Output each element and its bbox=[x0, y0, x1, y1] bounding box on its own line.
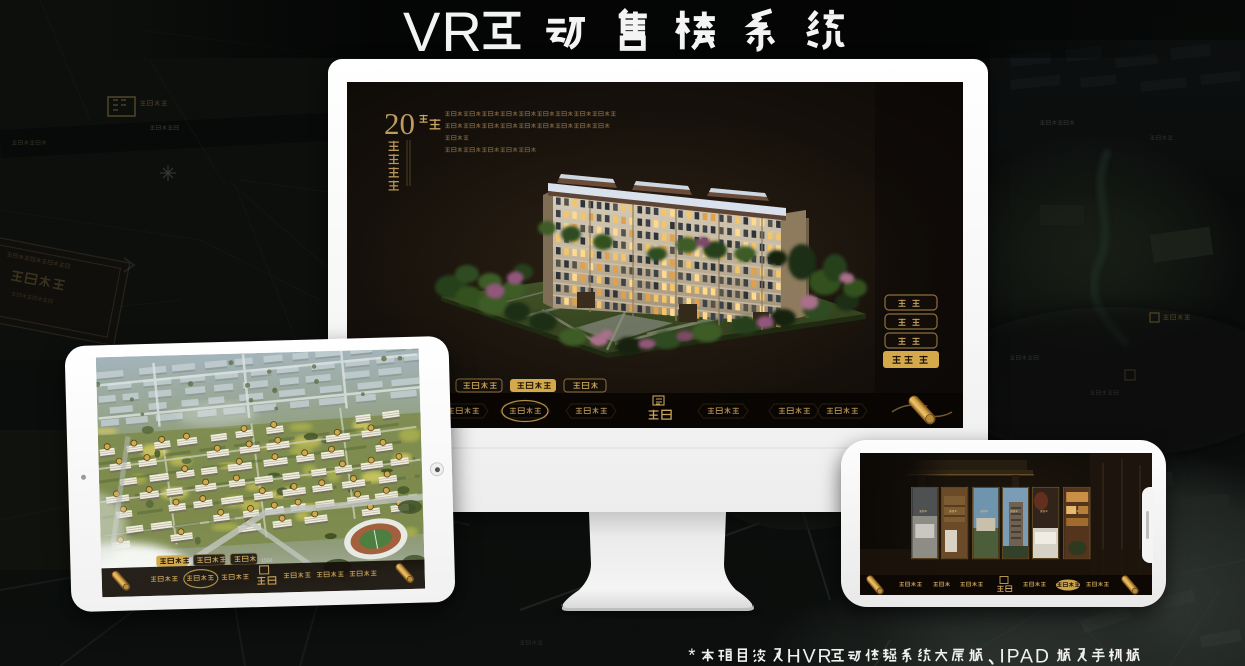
svg-text:20: 20 bbox=[384, 106, 415, 141]
svg-text:HVR: HVR bbox=[787, 646, 834, 666]
svg-text:*: * bbox=[688, 645, 695, 666]
svg-text:VR: VR bbox=[403, 0, 483, 58]
svg-text:1566: 1566 bbox=[261, 558, 273, 564]
svg-text:IPAD: IPAD bbox=[999, 646, 1051, 666]
